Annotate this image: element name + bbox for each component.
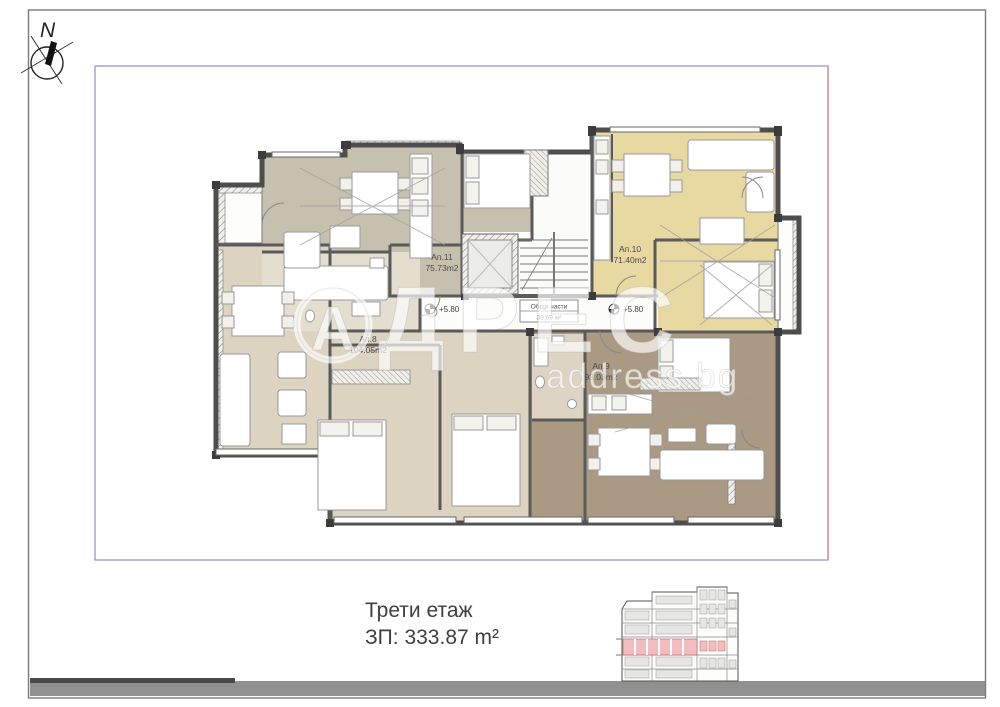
floor-plan-drawing: N <box>0 0 1000 707</box>
ap10-name: Ап.10 <box>619 244 641 254</box>
watermark-domain: address.bg <box>546 357 739 396</box>
ap10-area: 71.40m2 <box>613 255 646 265</box>
floor-title: Трети етаж <box>365 599 473 622</box>
drawing-sheet: N <box>0 0 1000 707</box>
north-label: N <box>40 19 56 42</box>
watermark-logo-letter: А <box>311 295 356 364</box>
built-area-title: ЗП: 333.87 m² <box>365 626 499 649</box>
building-elevation <box>616 587 738 681</box>
ap11-name: Ап.11 <box>431 252 453 262</box>
ground-bar <box>30 678 985 696</box>
